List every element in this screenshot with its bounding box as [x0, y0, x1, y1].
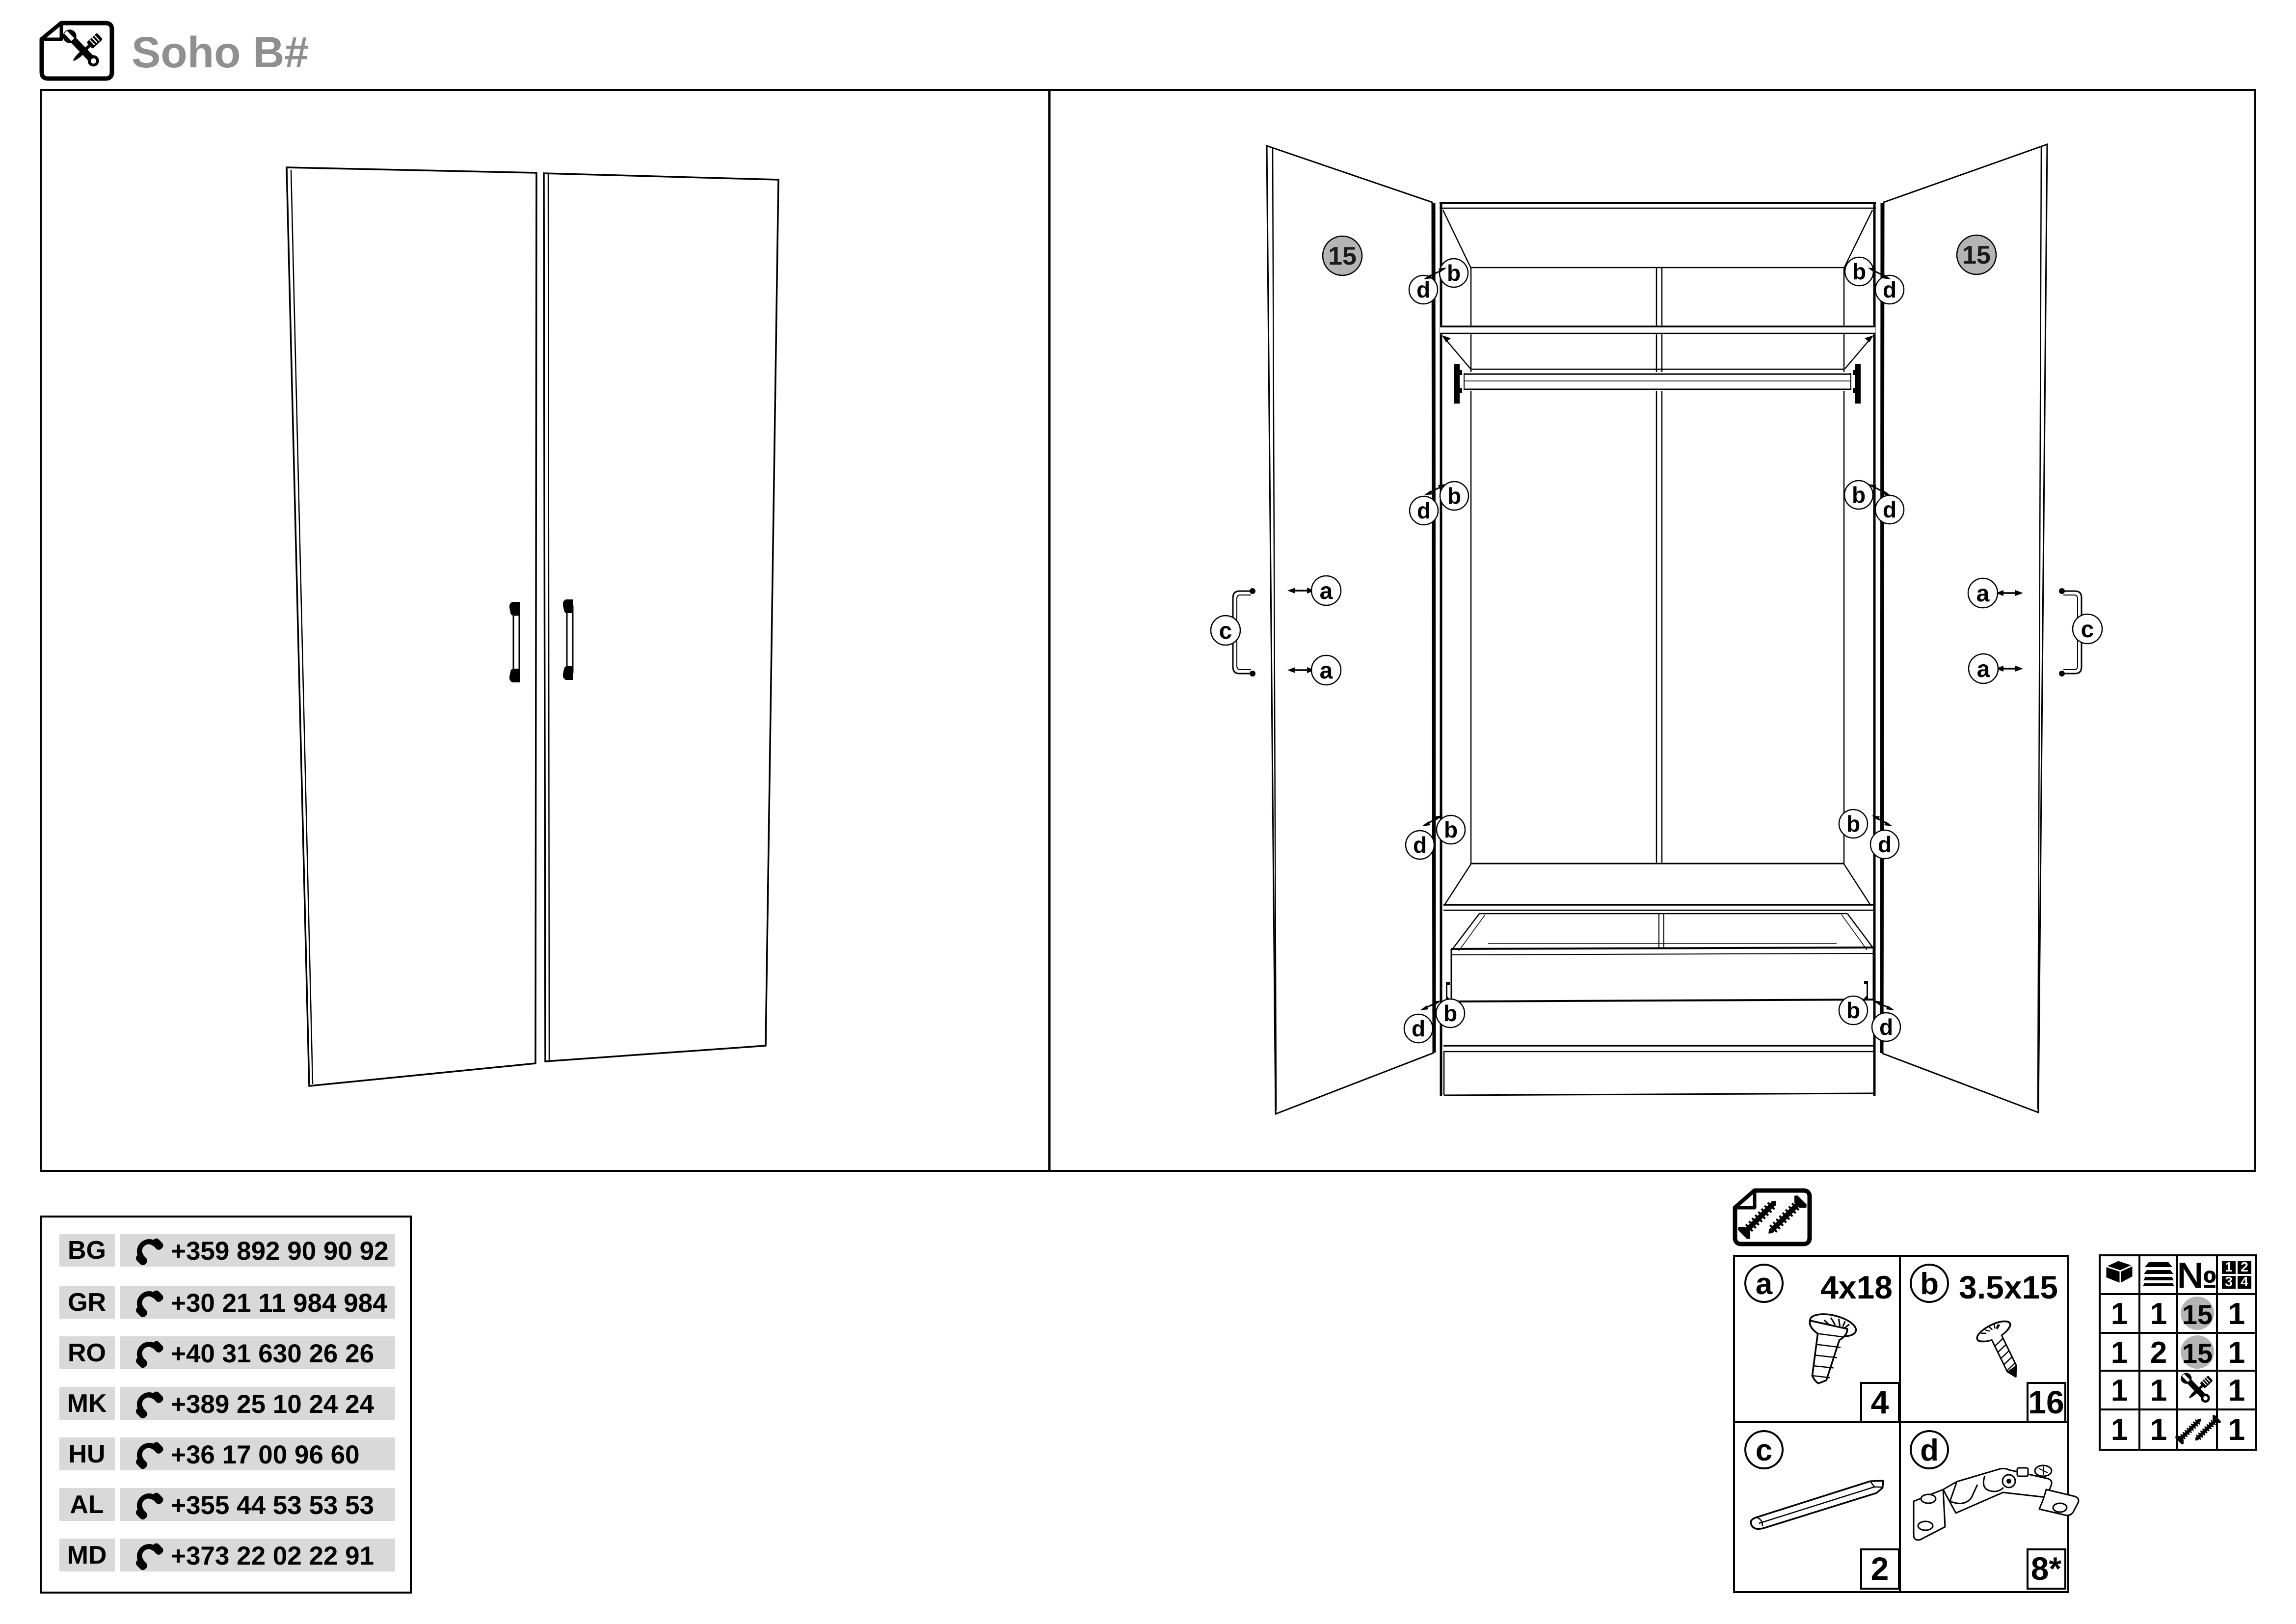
svg-text:№: № [2177, 1255, 2218, 1296]
svg-text:1: 1 [2225, 1259, 2233, 1274]
svg-text:8*: 8* [2031, 1550, 2062, 1587]
svg-text:3: 3 [2225, 1274, 2233, 1289]
svg-text:1: 1 [2228, 1413, 2245, 1447]
svg-text:d: d [1883, 277, 1896, 302]
svg-text:MD: MD [67, 1541, 107, 1570]
svg-text:a: a [1977, 656, 1990, 682]
svg-text:a: a [1320, 658, 1333, 684]
svg-text:4: 4 [1871, 1384, 1889, 1420]
svg-text:d: d [1878, 832, 1892, 857]
svg-text:1: 1 [2150, 1413, 2167, 1447]
svg-text:d: d [1883, 497, 1896, 522]
svg-text:b: b [1852, 482, 1866, 508]
svg-text:16: 16 [2028, 1384, 2064, 1420]
svg-text:b: b [1920, 1267, 1939, 1301]
svg-text:d: d [1412, 1016, 1425, 1041]
svg-text:+40 31 630 26 26: +40 31 630 26 26 [171, 1339, 374, 1368]
svg-text:b: b [1846, 998, 1860, 1023]
svg-text:+389 25 10 24 24: +389 25 10 24 24 [171, 1390, 374, 1419]
svg-text:b: b [1444, 817, 1458, 842]
svg-text:a: a [1976, 581, 1990, 607]
svg-text:AL: AL [70, 1490, 104, 1519]
svg-text:15: 15 [1962, 241, 1991, 270]
svg-text:1: 1 [2111, 1374, 2128, 1407]
svg-text:15: 15 [1328, 242, 1357, 271]
svg-text:15: 15 [2182, 1299, 2213, 1330]
svg-text:+359 892 90 90 92: +359 892 90 90 92 [171, 1237, 389, 1266]
svg-text:d: d [1417, 498, 1431, 523]
svg-text:2: 2 [2241, 1259, 2248, 1274]
svg-text:1: 1 [2150, 1374, 2167, 1407]
svg-text:2: 2 [1871, 1550, 1889, 1587]
svg-text:HU: HU [68, 1440, 105, 1468]
svg-text:4x18: 4x18 [1820, 1269, 1893, 1305]
svg-text:GR: GR [68, 1288, 106, 1317]
svg-text:a: a [1320, 578, 1333, 604]
svg-text:c: c [2081, 617, 2094, 643]
svg-text:1: 1 [2228, 1297, 2245, 1331]
svg-text:+373 22 02 22 91: +373 22 02 22 91 [171, 1542, 374, 1570]
svg-text:1: 1 [2150, 1297, 2167, 1331]
svg-text:1: 1 [2111, 1336, 2128, 1370]
svg-text:b: b [1447, 260, 1461, 286]
svg-text:MK: MK [67, 1389, 107, 1418]
svg-text:BG: BG [68, 1236, 106, 1265]
svg-text:a: a [1756, 1267, 1773, 1301]
svg-text:b: b [1447, 483, 1461, 509]
svg-text:b: b [1852, 259, 1866, 284]
svg-text:Soho B#: Soho B# [132, 27, 309, 77]
svg-text:RO: RO [68, 1339, 106, 1367]
svg-text:b: b [1846, 811, 1860, 837]
svg-text:4: 4 [2241, 1274, 2248, 1289]
svg-text:c: c [1756, 1434, 1772, 1467]
svg-text:1: 1 [2111, 1413, 2128, 1447]
svg-text:+355 44 53 53 53: +355 44 53 53 53 [171, 1491, 374, 1520]
svg-text:1: 1 [2228, 1374, 2245, 1407]
svg-text:b: b [1443, 1001, 1457, 1026]
svg-text:d: d [1413, 832, 1427, 858]
svg-text:2: 2 [2150, 1336, 2167, 1370]
svg-text:3.5x15: 3.5x15 [1959, 1269, 2058, 1305]
svg-text:d: d [1879, 1014, 1893, 1040]
svg-text:1: 1 [2111, 1297, 2128, 1331]
svg-text:15: 15 [2182, 1338, 2213, 1369]
svg-text:+36 17 00 96 60: +36 17 00 96 60 [171, 1440, 360, 1469]
svg-text:d: d [1416, 277, 1430, 302]
svg-text:+30 21 11 984 984: +30 21 11 984 984 [171, 1289, 387, 1318]
svg-text:c: c [1219, 618, 1232, 644]
svg-text:d: d [1920, 1434, 1939, 1467]
svg-text:1: 1 [2228, 1336, 2245, 1370]
